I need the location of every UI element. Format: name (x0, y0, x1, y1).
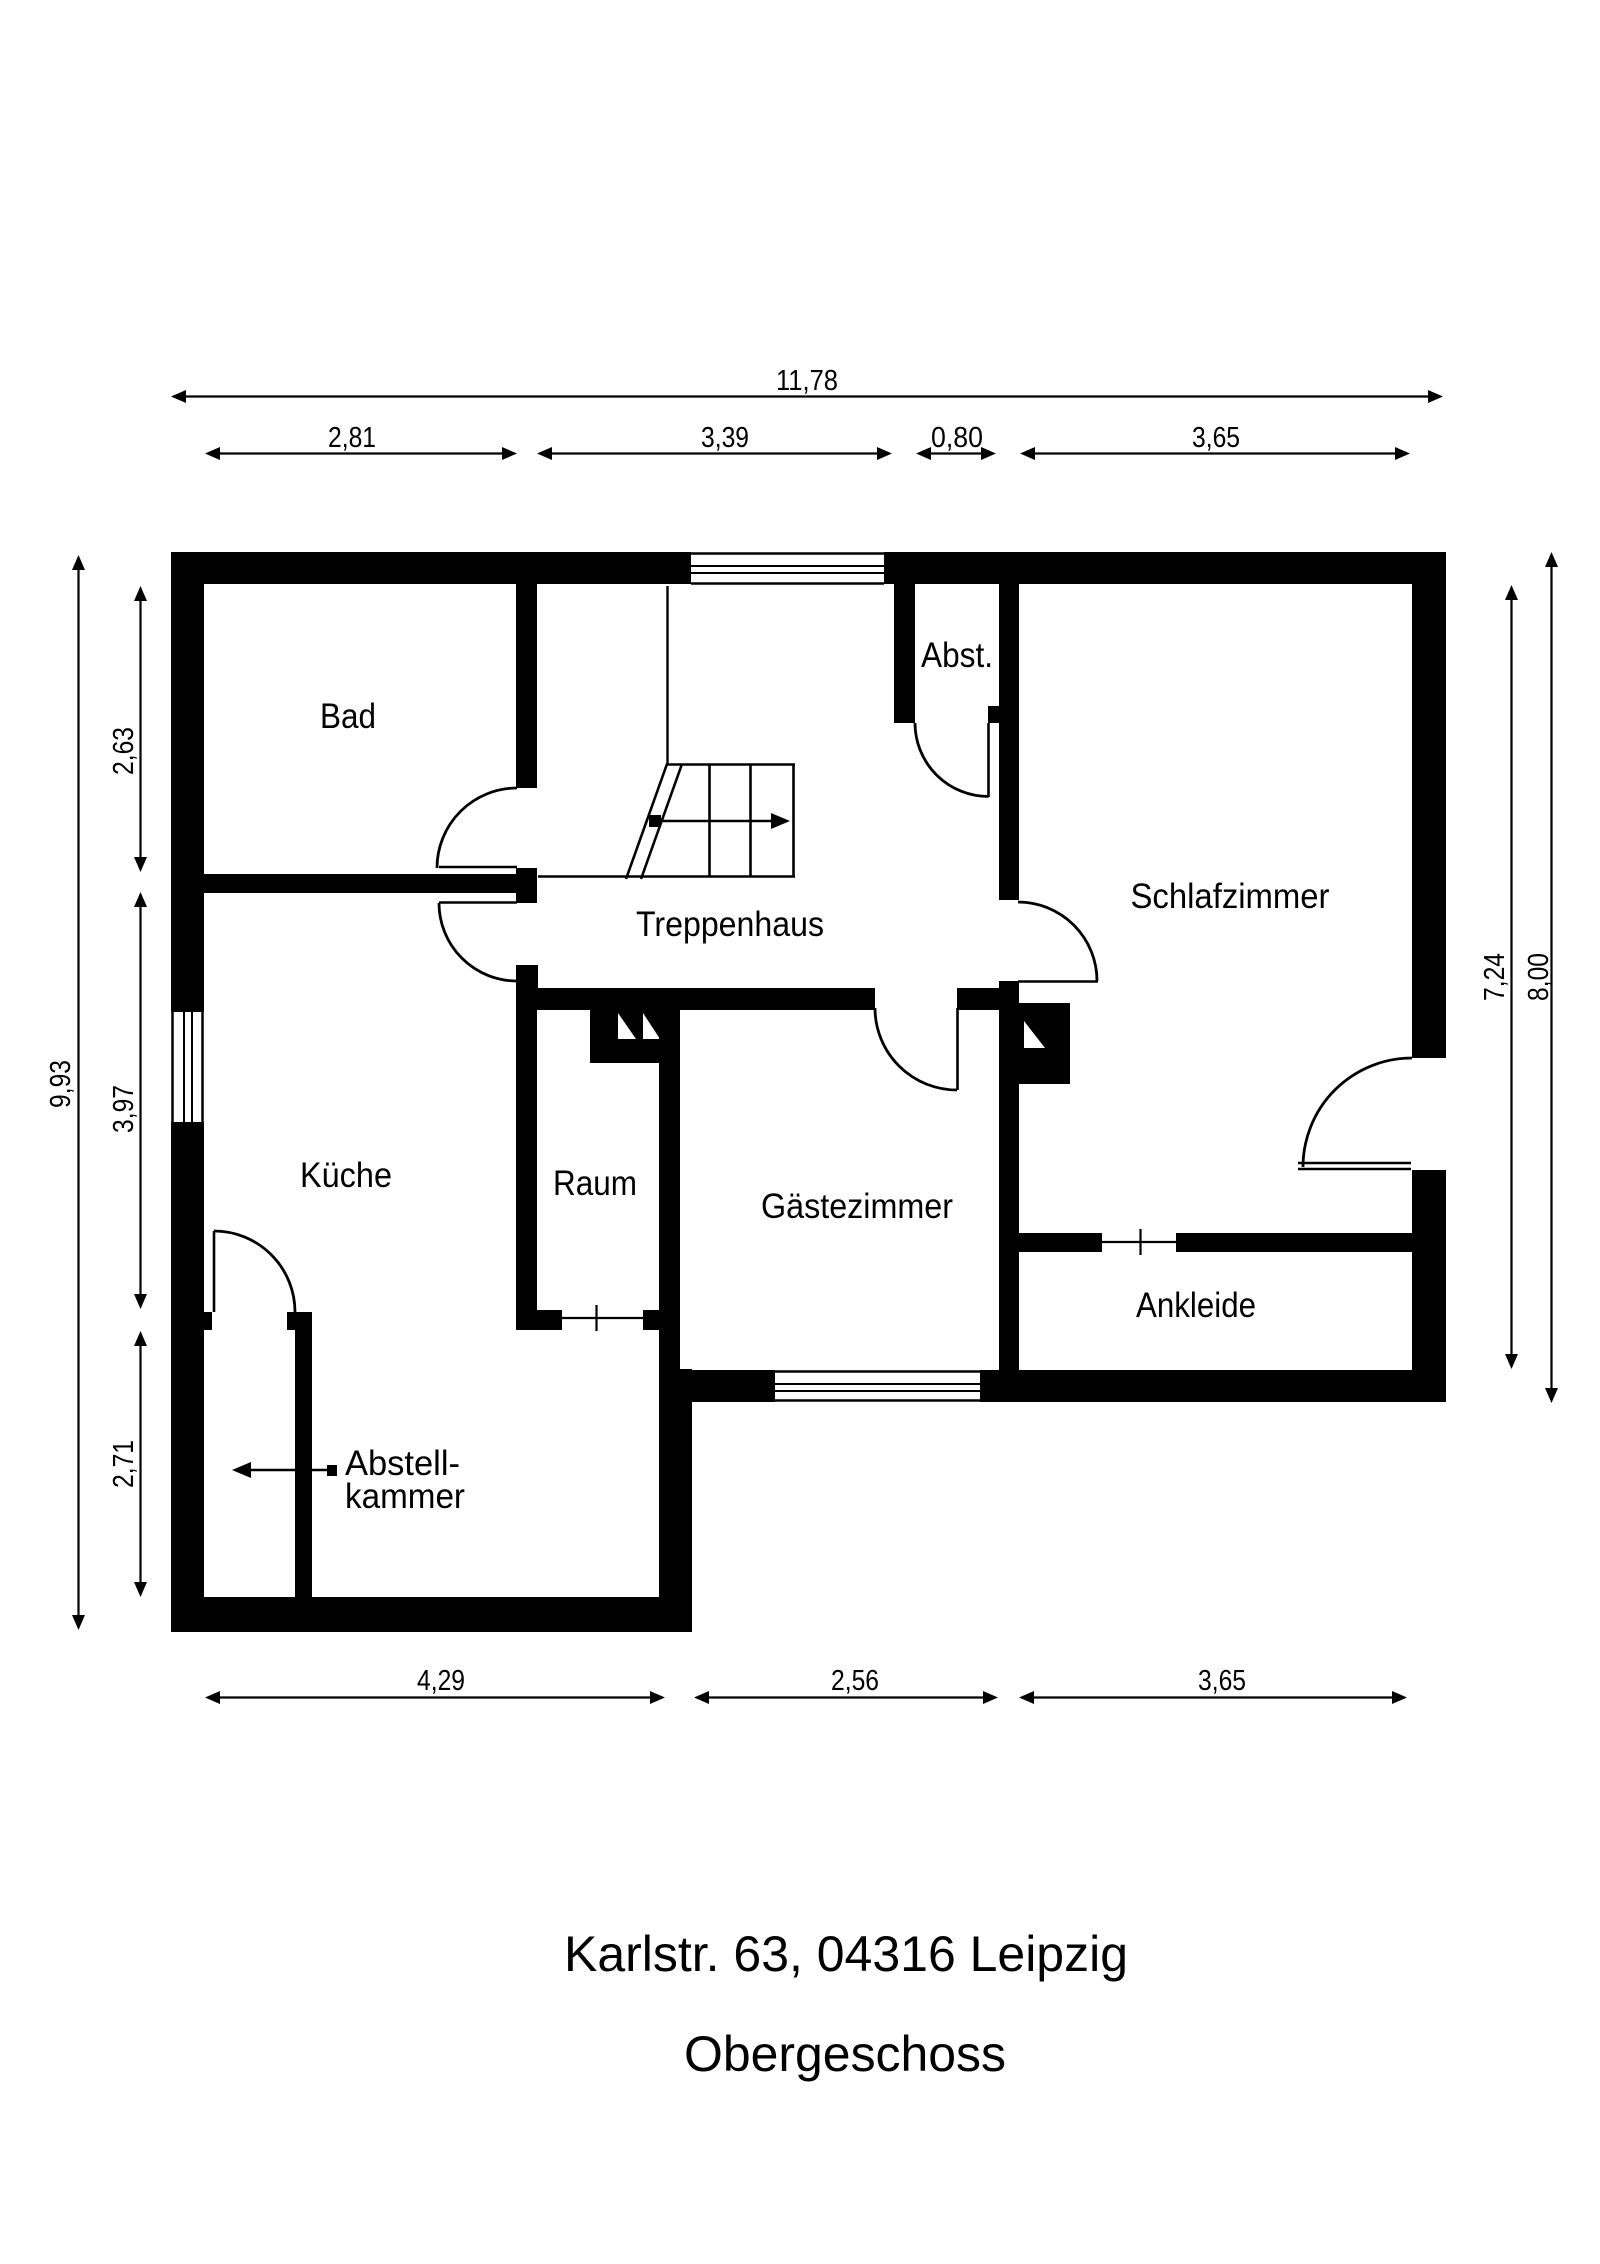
svg-text:Raum: Raum (553, 1164, 637, 1203)
svg-text:3,65: 3,65 (1198, 1665, 1246, 1697)
svg-text:Treppenhaus: Treppenhaus (636, 905, 824, 944)
svg-text:Schlafzimmer: Schlafzimmer (1131, 877, 1330, 916)
svg-text:Abst.: Abst. (921, 636, 993, 675)
svg-text:9,93: 9,93 (45, 1060, 77, 1108)
svg-text:kammer: kammer (345, 1477, 465, 1516)
svg-text:7,24: 7,24 (1479, 953, 1511, 1001)
svg-text:Obergeschoss: Obergeschoss (684, 2026, 1006, 2082)
svg-text:8,00: 8,00 (1523, 953, 1555, 1001)
svg-text:4,29: 4,29 (417, 1665, 465, 1697)
svg-text:Ankleide: Ankleide (1136, 1286, 1256, 1325)
svg-text:3,97: 3,97 (108, 1085, 140, 1133)
svg-text:Karlstr. 63, 04316 Leipzig: Karlstr. 63, 04316 Leipzig (564, 1926, 1128, 1982)
svg-text:Küche: Küche (300, 1156, 392, 1195)
svg-text:2,81: 2,81 (328, 422, 376, 454)
svg-text:0,80: 0,80 (931, 422, 983, 454)
svg-text:2,71: 2,71 (108, 1440, 140, 1488)
svg-text:11,78: 11,78 (776, 365, 838, 397)
svg-text:3,65: 3,65 (1192, 422, 1240, 454)
svg-text:Bad: Bad (320, 697, 376, 736)
svg-text:2,63: 2,63 (108, 727, 140, 775)
svg-text:3,39: 3,39 (701, 422, 749, 454)
svg-text:2,56: 2,56 (831, 1665, 879, 1697)
svg-text:Gästezimmer: Gästezimmer (761, 1187, 953, 1226)
